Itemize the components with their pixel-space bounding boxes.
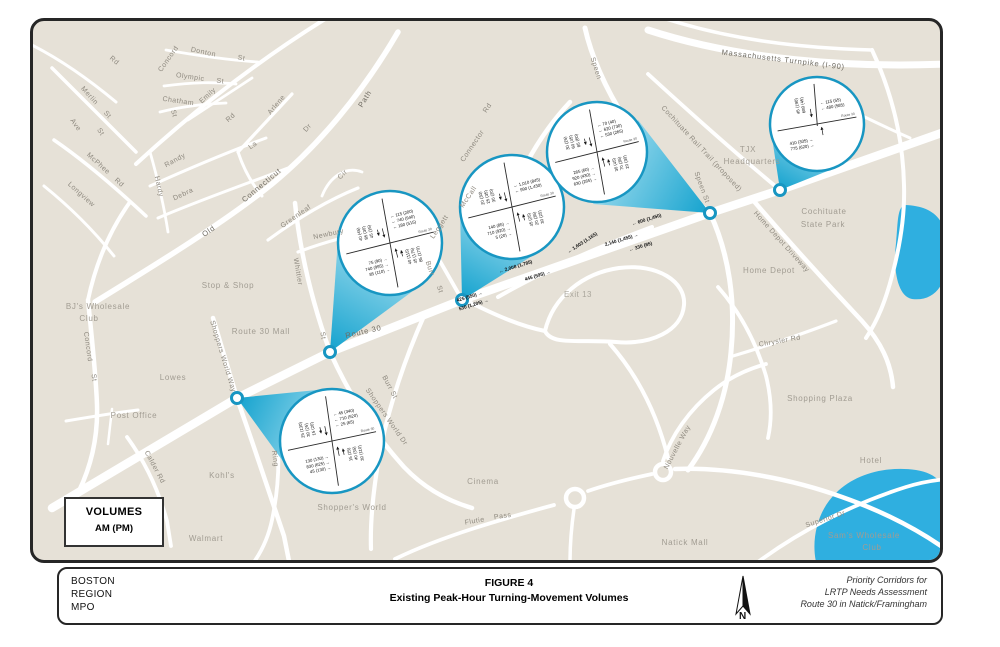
credit-line: LRTP Needs Assessment — [800, 586, 927, 598]
road — [610, 344, 668, 458]
map-label-street: St — [95, 127, 105, 137]
figure-number: FIGURE 4 — [309, 577, 709, 589]
map-label-street: Whittier — [292, 257, 304, 286]
map-label-place: Natick Mall — [662, 538, 709, 547]
map-label-street: Connector — [460, 129, 486, 164]
north-label: N — [739, 611, 746, 621]
map-label-place: Cinema — [467, 477, 499, 486]
road — [718, 287, 771, 438]
agency-line: MPO — [71, 601, 115, 614]
intersection-marker — [705, 208, 716, 219]
map-label-major: Massachusetts Turnpike (I-90) — [721, 47, 845, 71]
water-bodies — [814, 205, 943, 562]
map-label-street: Rd — [108, 55, 120, 67]
map-label-street: Arlene — [267, 94, 287, 116]
map-label-place: Club — [79, 314, 98, 323]
map-label-street: Ave — [69, 118, 82, 133]
road — [164, 83, 236, 86]
map-label-place: Home Depot — [743, 266, 795, 275]
agency-line: BOSTON — [71, 575, 115, 588]
map-canvas: ← 45 (340)← 710 (520)← 25 (65)130 (130) … — [30, 18, 943, 563]
road-flutie-pass — [395, 505, 554, 559]
map-label-street: Rd — [225, 112, 237, 124]
road — [872, 50, 904, 272]
intersection-marker — [775, 185, 786, 196]
roundabout — [566, 489, 584, 507]
road-exit13-loop — [545, 267, 684, 342]
map-label-place: BJ's Wholesale — [66, 302, 130, 311]
callout-route30-shoppers-world-way: ← 45 (340)← 710 (520)← 25 (65)130 (130) … — [279, 388, 386, 495]
intersection-marker — [232, 393, 243, 404]
segment-volume-label: ← 600 (1,450) — [631, 213, 662, 228]
map-label-place: Lowes — [160, 373, 187, 382]
map-label-street: Dr — [302, 122, 313, 133]
map-label-place: TJX — [740, 145, 756, 154]
map-label-street: Randy — [164, 152, 187, 169]
north-arrow: N — [731, 573, 757, 626]
map-label-street: Longview — [66, 181, 96, 209]
intersection-marker — [325, 347, 336, 358]
road — [866, 272, 893, 338]
road — [570, 509, 574, 562]
map-label-place: Post Office — [111, 411, 158, 420]
map-label-place: Shopping Plaza — [787, 394, 853, 403]
agency-name: BOSTON REGION MPO — [71, 575, 115, 614]
map-label-street: Olympic — [175, 72, 204, 83]
north-arrow-left — [736, 576, 743, 614]
map-label-street: Debra — [172, 187, 195, 202]
figure-title: Existing Peak-Hour Turning-Movement Volu… — [309, 592, 709, 604]
map-label-street: St — [435, 285, 444, 294]
map-label-place: State Park — [801, 220, 846, 229]
map-svg: ← 45 (340)← 710 (520)← 25 (65)130 (130) … — [30, 18, 943, 563]
map-label-street: Ring — [270, 450, 279, 467]
project-credits: Priority Corridors for LRTP Needs Assess… — [800, 574, 927, 610]
road-concord-st — [79, 300, 97, 491]
map-label-place: Headquarters — [724, 157, 781, 166]
map-label-place: Cochituate — [801, 207, 846, 216]
map-label-place: Kohl's — [209, 471, 235, 480]
map-label-place: Hotel — [860, 456, 882, 465]
legend-units: AM (PM) — [66, 523, 162, 534]
map-label-place: Stop & Shop — [202, 281, 255, 290]
legend-title: VOLUMES — [66, 506, 162, 518]
road — [52, 68, 136, 152]
legend-box: VOLUMES AM (PM) — [64, 497, 164, 547]
title-block: BOSTON REGION MPO FIGURE 4 Existing Peak… — [57, 567, 943, 625]
map-label-street: St — [89, 374, 97, 383]
credit-line: Priority Corridors for — [800, 574, 927, 586]
map-label-street: Rd — [482, 102, 493, 114]
map-label-place: Sam's Wholesale — [828, 531, 900, 540]
figure-page: ← 45 (340)← 710 (520)← 25 (65)130 (130) … — [0, 0, 1000, 647]
road — [30, 44, 116, 102]
agency-line: REGION — [71, 588, 115, 601]
map-label-street: St — [216, 78, 225, 86]
map-label-place: Shopper's World — [317, 503, 386, 512]
north-arrow-right — [743, 576, 750, 614]
callout-circles: ← 45 (340)← 710 (520)← 25 (65)130 (130) … — [279, 77, 864, 494]
map-label-street: Chatham — [162, 96, 195, 107]
credit-line: Route 30 in Natick/Framingham — [800, 598, 927, 610]
map-label-street: Pass — [494, 512, 512, 521]
road-speen-st — [688, 213, 733, 470]
map-label-street: St — [169, 109, 178, 118]
map-label-street: St — [318, 331, 326, 340]
map-label-place: Route 30 Mall — [232, 327, 290, 336]
road — [238, 94, 292, 152]
map-label-street: Chrysler Rd — [758, 334, 801, 348]
figure-title-block: FIGURE 4 Existing Peak-Hour Turning-Move… — [309, 577, 709, 604]
road — [588, 474, 652, 491]
map-label-exit: Exit 13 — [564, 290, 592, 299]
map-label-place: Walmart — [189, 534, 223, 543]
callout-route30-home-depot-driveway: ← 115 (55)← 480 (585)410 (305) →775 (620… — [770, 77, 864, 171]
map-label-place: Club — [862, 543, 881, 552]
